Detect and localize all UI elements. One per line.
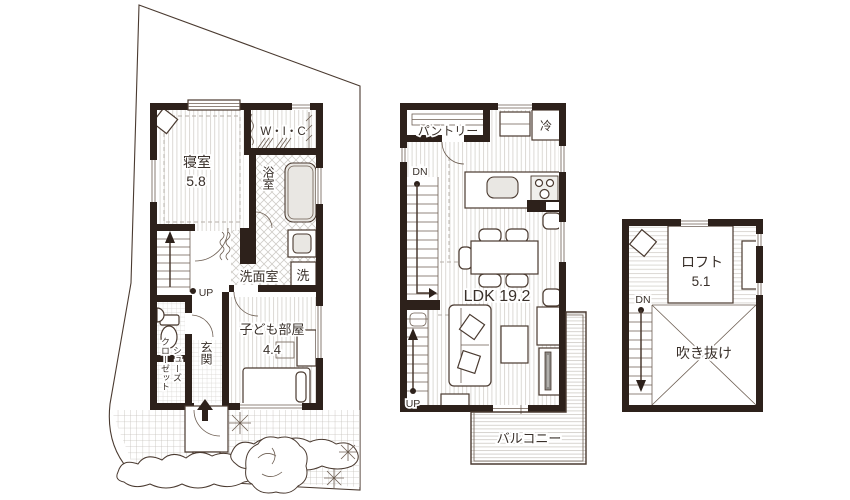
grass-plant-3 xyxy=(324,468,344,488)
floor2-plan: パントリー 冷 DN UP LDK 19.2 バルコニー xyxy=(400,103,586,464)
floor1-plan: 寝室 5.8 W・I・C 浴室 洗面室 洗 子ども部屋 4.4 玄関 シューズ … xyxy=(150,100,323,463)
loft-area-label: 5.1 xyxy=(692,274,711,289)
floor2-stairs-up xyxy=(407,310,428,405)
bedroom-top-window xyxy=(188,100,240,110)
floor-plan-drawing: 寝室 5.8 W・I・C 浴室 洗面室 洗 子ども部屋 4.4 玄関 シューズ … xyxy=(0,0,850,500)
floor1-stairs xyxy=(157,231,196,294)
floor2-stairs-down xyxy=(407,177,438,300)
sofa xyxy=(449,305,491,386)
void-label: 吹き抜け xyxy=(676,345,732,361)
grass-plant-1 xyxy=(229,412,251,434)
tv-stand xyxy=(539,348,560,395)
coffee-table xyxy=(501,326,528,363)
dining-table xyxy=(471,241,538,274)
laundry-label: 洗 xyxy=(296,268,309,283)
bathtub xyxy=(285,163,316,222)
fridge-label: 冷 xyxy=(540,119,552,133)
loft-stairs-down xyxy=(629,305,652,405)
kitchen-sink xyxy=(487,177,518,198)
tv-board xyxy=(537,307,560,345)
grass-plant-2 xyxy=(339,443,357,461)
loft-desk xyxy=(742,241,757,289)
shoe-closet-label-2: クローゼット xyxy=(160,337,170,391)
kids-area-label: 4.4 xyxy=(263,342,281,357)
floor2-dn-label: DN xyxy=(412,166,427,178)
floor2-up-label: UP xyxy=(406,398,421,410)
stove xyxy=(531,176,558,201)
bedroom-area-label: 5.8 xyxy=(186,173,206,189)
armchair xyxy=(543,289,561,306)
ldk-label: LDK 19.2 xyxy=(464,288,531,305)
loft-label: ロフト xyxy=(681,254,723,270)
kids-bed-pillow xyxy=(296,372,306,402)
floor1-up-label: UP xyxy=(199,287,214,299)
kids-room-label: 子ども部屋 xyxy=(239,322,304,337)
loft-dn-label: DN xyxy=(635,294,650,306)
shoe-closet-label-1: シューズ xyxy=(172,346,182,382)
vanity-bowl xyxy=(293,234,311,253)
pantry-label: パントリー xyxy=(418,124,479,138)
entrance-label: 玄関 xyxy=(199,340,213,365)
garden-tree xyxy=(246,437,308,493)
washroom-label: 洗面室 xyxy=(239,269,278,284)
bedroom-label: 寝室 xyxy=(183,154,211,170)
floor-plan-page: 寝室 5.8 W・I・C 浴室 洗面室 洗 子ども部屋 4.4 玄関 シューズ … xyxy=(0,0,850,500)
floor-mat xyxy=(441,394,469,406)
bath-label: 浴室 xyxy=(261,166,275,190)
loft-plan: ロフト 5.1 DN 吹き抜け xyxy=(622,219,763,412)
wic-label: W・I・C xyxy=(260,126,305,138)
kitchen-stool xyxy=(543,213,561,229)
balcony-label: バルコニー xyxy=(497,431,562,446)
